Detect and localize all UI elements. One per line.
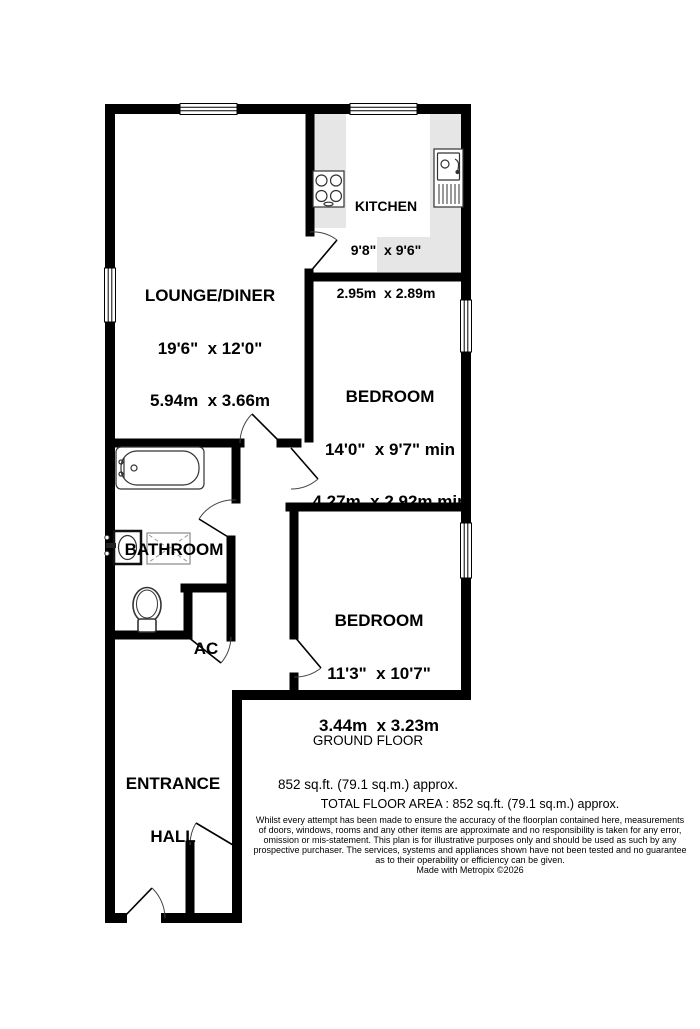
room-name-line2: HALL [103, 828, 243, 846]
room-dims-metric: 2.95m x 2.89m [301, 286, 471, 301]
toilet-icon [133, 588, 161, 633]
room-name-line1: ENTRANCE [103, 775, 243, 793]
room-label-airing-cupboard: AC [186, 605, 226, 675]
room-dims-metric: 5.94m x 3.66m [120, 392, 300, 410]
room-dims-imperial: 14'0" x 9'7" min [295, 441, 485, 459]
room-dims-imperial: 9'8" x 9'6" [301, 243, 471, 258]
floor-title: GROUND FLOOR [268, 734, 468, 749]
room-label-lounge-diner: LOUNGE/DINER 19'6" x 12'0" 5.94m x 3.66m [120, 252, 300, 427]
room-label-kitchen: KITCHEN 9'8" x 9'6" 2.95m x 2.89m [301, 170, 471, 315]
window [461, 523, 472, 578]
floor-area: 852 sq.ft. (79.1 sq.m.) approx. [268, 778, 468, 793]
bath-icon [116, 447, 204, 489]
room-name: LOUNGE/DINER [120, 287, 300, 305]
window [180, 104, 237, 115]
disclaimer-text: Whilst every attempt has been made to en… [240, 815, 700, 865]
room-name: BEDROOM [289, 612, 469, 630]
metropix-credit: Made with Metropix ©2026 [240, 865, 700, 875]
room-dims-imperial: 11'3" x 10'7" [289, 665, 469, 683]
total-floor-area: TOTAL FLOOR AREA : 852 sq.ft. (79.1 sq.m… [240, 797, 700, 811]
door-front-entrance [123, 888, 165, 918]
room-label-bedroom-1: BEDROOM 14'0" x 9'7" min 4.27m x 2.92m m… [295, 353, 485, 528]
room-dims-metric: 4.27m x 2.92m min [295, 493, 485, 511]
room-label-bathroom: BATHROOM [94, 506, 254, 576]
room-name: BEDROOM [295, 388, 485, 406]
room-name: KITCHEN [301, 199, 471, 214]
floor-summary: GROUND FLOOR 852 sq.ft. (79.1 sq.m.) app… [268, 705, 468, 807]
window [350, 104, 417, 115]
room-dims-imperial: 19'6" x 12'0" [120, 340, 300, 358]
room-name: BATHROOM [94, 541, 254, 559]
footer: TOTAL FLOOR AREA : 852 sq.ft. (79.1 sq.m… [240, 797, 700, 875]
room-label-entrance-hall: ENTRANCE HALL [103, 740, 243, 863]
window [105, 268, 116, 322]
room-name: AC [186, 640, 226, 658]
